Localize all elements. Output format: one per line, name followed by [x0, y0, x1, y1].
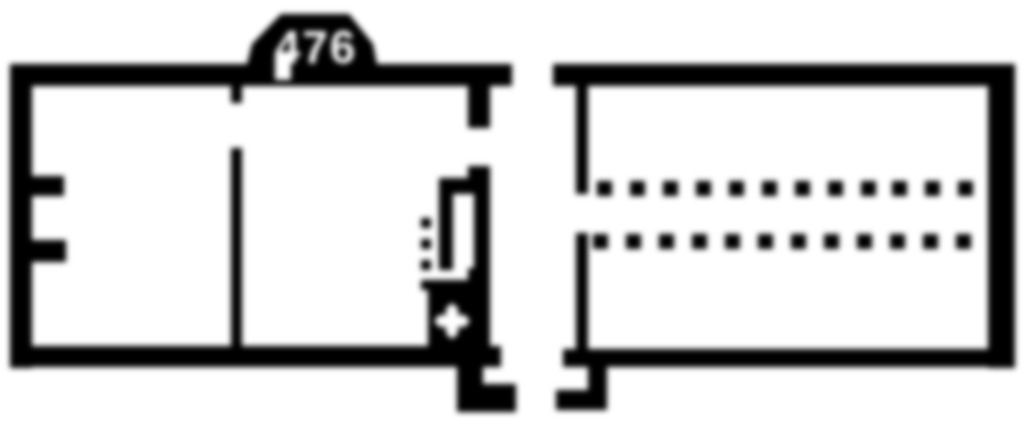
svg-text:476: 476	[275, 21, 358, 73]
